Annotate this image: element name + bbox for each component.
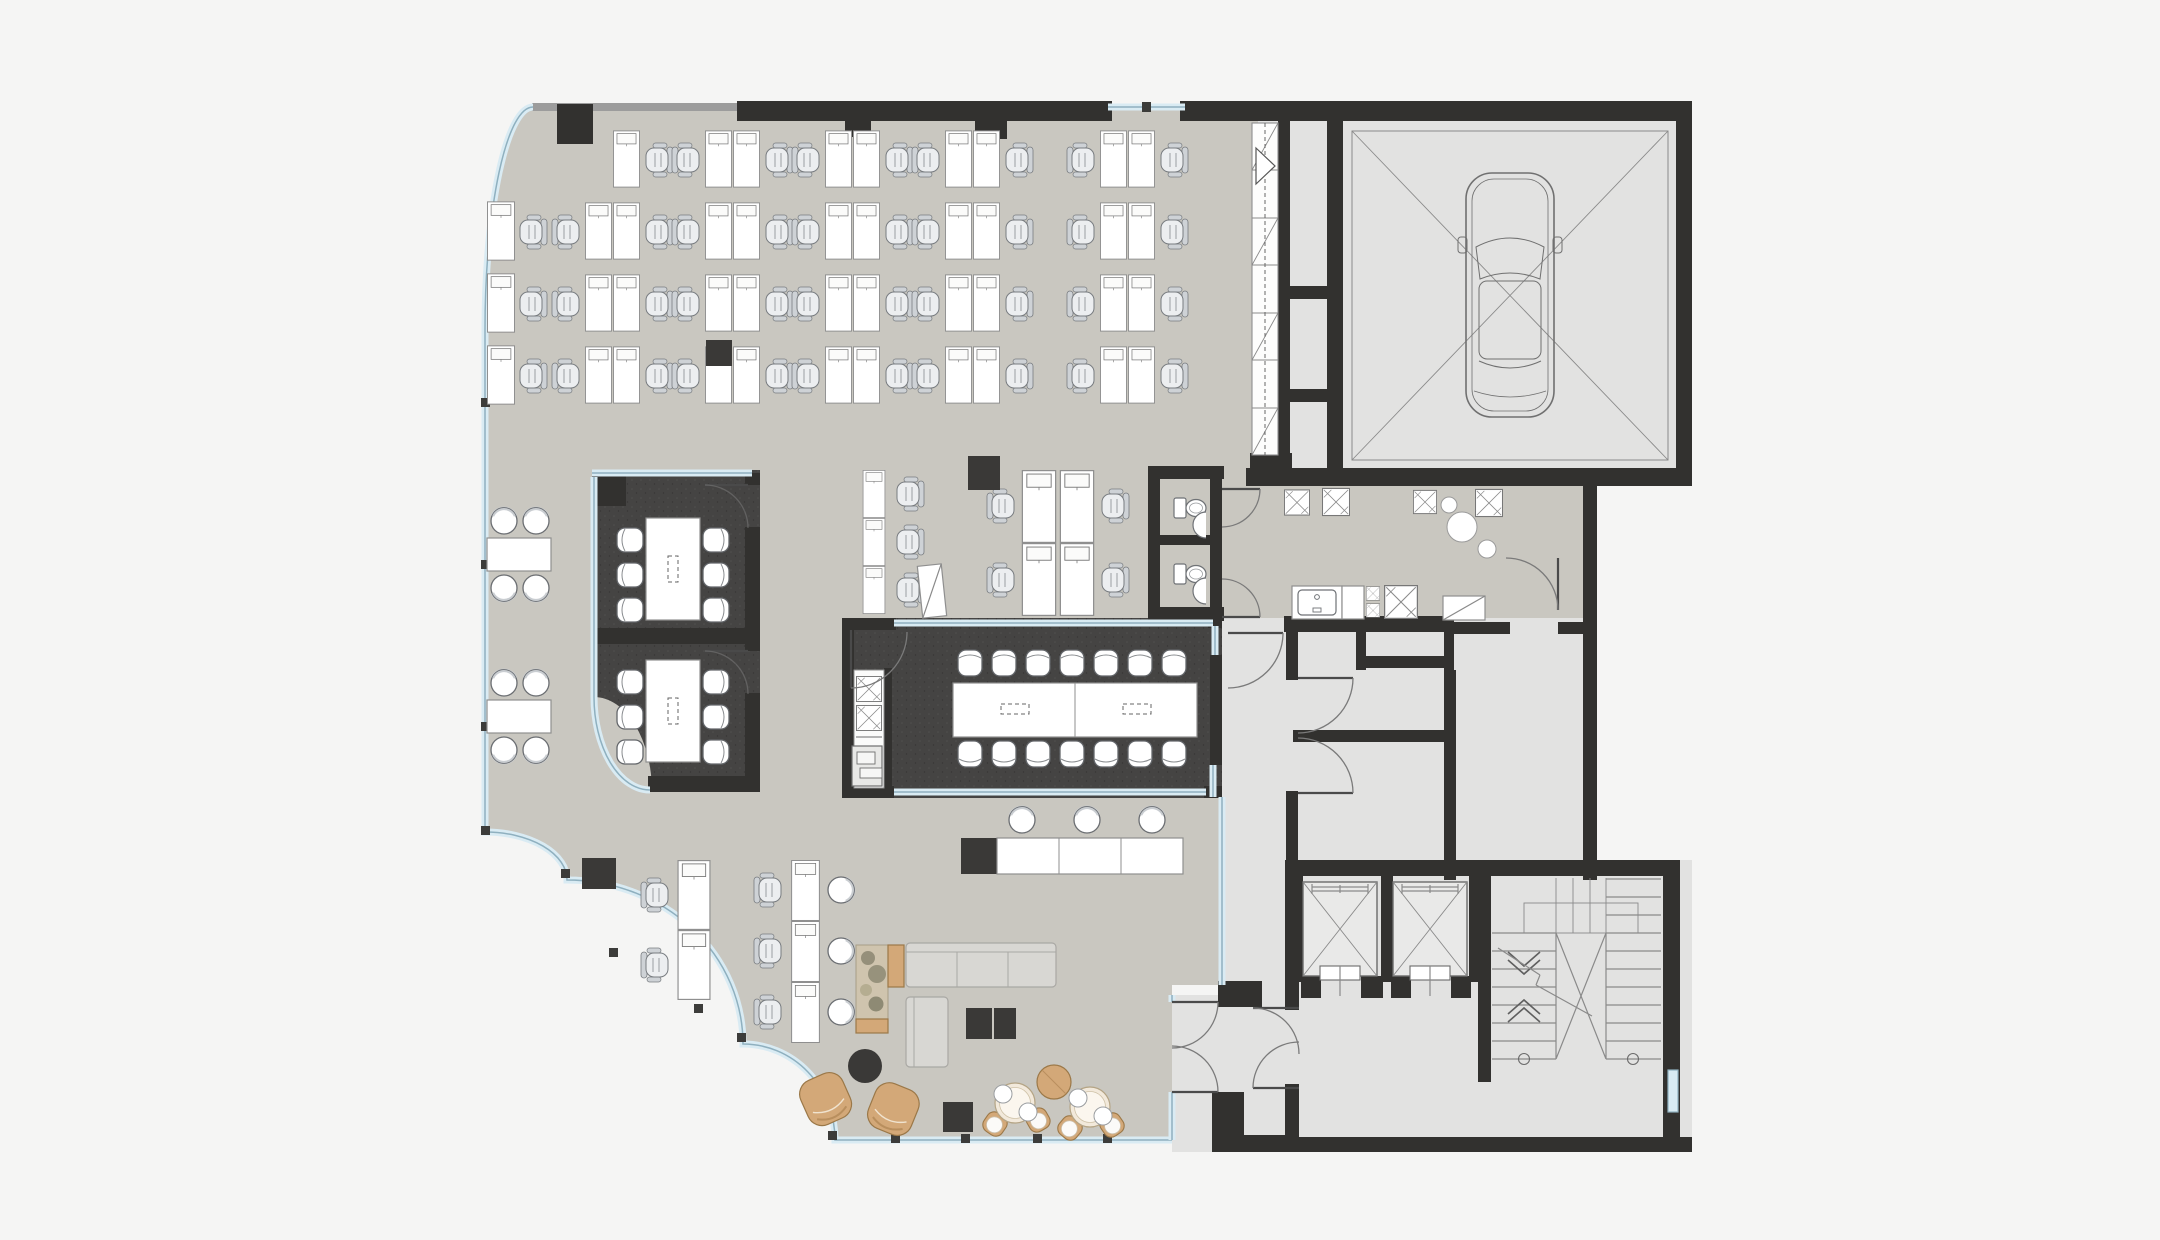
shaft-wall-right — [1469, 876, 1481, 982]
desk — [825, 203, 851, 259]
meeting-wall-right-d — [745, 693, 760, 778]
glass-top-gap — [1108, 102, 1185, 112]
column — [961, 838, 997, 874]
conference-chair — [1094, 650, 1118, 676]
desk — [1128, 275, 1154, 331]
meeting-table — [646, 518, 700, 620]
conference-chair — [1060, 650, 1084, 676]
desk — [705, 131, 731, 187]
corridor-bottom-wall-a — [1446, 622, 1510, 634]
meeting-wall-bottom — [648, 776, 760, 792]
desk — [1022, 544, 1055, 616]
desk — [1100, 131, 1126, 187]
vestibule-wall-b — [1286, 791, 1298, 864]
column — [706, 340, 732, 366]
meeting-chair — [703, 528, 729, 552]
side-chair — [828, 877, 854, 903]
service-shaft — [1284, 490, 1309, 515]
desk — [945, 347, 971, 403]
stair-window — [1668, 1070, 1678, 1112]
service-shaft — [1322, 488, 1349, 515]
desk — [487, 346, 514, 404]
desk — [1022, 471, 1055, 543]
desk — [1100, 203, 1126, 259]
desk — [678, 931, 710, 1000]
desk — [1100, 347, 1126, 403]
desk — [733, 347, 759, 403]
bar-stool — [1009, 807, 1035, 833]
desk — [792, 861, 820, 921]
oven — [856, 676, 881, 701]
desk — [678, 861, 710, 930]
shaft-wall-mid — [1381, 876, 1393, 982]
top-wall-east — [1180, 101, 1692, 121]
side-chair — [828, 938, 854, 964]
column — [968, 456, 1000, 490]
column-top — [557, 104, 593, 144]
meeting-divider-wall — [592, 628, 760, 644]
desk — [585, 203, 611, 259]
corridor-wall-right — [1583, 468, 1597, 880]
desk — [613, 131, 639, 187]
shaft-stub-2 — [1361, 976, 1383, 998]
meeting-chair — [703, 563, 729, 587]
conference-chair — [1162, 650, 1186, 676]
conference-chair — [1026, 741, 1050, 767]
desk — [945, 131, 971, 187]
conf-wall-top-stub — [842, 618, 896, 630]
desk — [1060, 471, 1093, 543]
round-chair — [491, 737, 517, 763]
conference-chair — [958, 741, 982, 767]
shaft-stub-3 — [1391, 976, 1411, 998]
meeting-wall-right-b — [745, 527, 760, 628]
conference-chair — [958, 650, 982, 676]
shaft-stub-b — [1278, 389, 1330, 402]
round-chair — [523, 508, 549, 534]
wood-side-table — [888, 945, 904, 987]
shaft-stub-a — [1278, 286, 1330, 299]
meeting-chair — [703, 705, 729, 729]
meeting-table — [646, 660, 700, 762]
table — [487, 700, 551, 733]
shaft-stub-1 — [1301, 976, 1321, 998]
desk — [1060, 544, 1093, 616]
service-shaft — [1475, 489, 1502, 516]
conference-chair — [1060, 741, 1084, 767]
round-chair — [523, 575, 549, 601]
desk — [863, 566, 885, 613]
round-chair — [491, 508, 517, 534]
meeting-chair — [703, 598, 729, 622]
column — [943, 1102, 973, 1132]
meeting-chair — [617, 598, 643, 622]
desk — [733, 131, 759, 187]
desk — [973, 275, 999, 331]
desk — [792, 922, 820, 982]
niche-wall-b — [1356, 656, 1454, 668]
meeting-chair — [617, 670, 643, 694]
conference-chair — [1162, 741, 1186, 767]
lounge-stub-b — [1212, 1092, 1244, 1142]
conf-niche-wall-r — [884, 668, 892, 794]
flipchart — [917, 564, 946, 618]
bar-table — [997, 838, 1183, 874]
desk — [853, 203, 879, 259]
coffee-table — [994, 1008, 1016, 1039]
ottoman — [848, 1049, 882, 1083]
desk — [1128, 347, 1154, 403]
desk — [585, 275, 611, 331]
round-chair — [523, 737, 549, 763]
service-floor-vestibule — [1222, 618, 1293, 1152]
conf-wall-right — [1210, 655, 1222, 765]
small-shaft — [1366, 587, 1380, 601]
bar-stool — [1139, 807, 1165, 833]
desk — [613, 347, 639, 403]
conference-chair — [1026, 650, 1050, 676]
side-chair — [828, 999, 854, 1025]
conference-chair — [1094, 741, 1118, 767]
desk — [853, 131, 879, 187]
louvre-strip — [1252, 123, 1278, 455]
service-shaft — [1413, 490, 1436, 513]
floor-plan-canvas — [0, 0, 2160, 1240]
desk — [613, 203, 639, 259]
desk — [585, 347, 611, 403]
core-wall-bottom — [1285, 1137, 1692, 1152]
room-divider-wall-v — [1444, 670, 1456, 880]
coffee-table — [966, 1008, 992, 1039]
desk — [487, 202, 514, 260]
desk — [863, 518, 885, 565]
corridor-bottom-wall-b — [1558, 622, 1583, 634]
car-lift-wall-right — [1676, 121, 1692, 470]
meeting-room-2 — [617, 660, 729, 764]
meeting-room-1 — [617, 518, 729, 622]
conference-chair — [1128, 650, 1152, 676]
printer — [852, 746, 882, 786]
table — [487, 538, 551, 571]
desk — [1128, 131, 1154, 187]
small-shaft — [1366, 604, 1380, 618]
shaft-wall-left — [1293, 876, 1303, 982]
desk — [853, 275, 879, 331]
sofa-horizontal — [906, 943, 1056, 987]
vestibule-wall-a — [1286, 622, 1298, 680]
core-wall-top — [1285, 860, 1680, 876]
desk — [792, 983, 820, 1043]
conference-chair — [992, 741, 1016, 767]
meeting-chair — [703, 670, 729, 694]
lounge-stub-c — [1212, 1135, 1292, 1152]
desk — [613, 275, 639, 331]
round-chair — [491, 670, 517, 696]
desk — [945, 275, 971, 331]
wood-shelf — [856, 1019, 888, 1033]
desk — [825, 347, 851, 403]
meeting-chair — [703, 740, 729, 764]
sofa-vertical — [906, 997, 948, 1067]
column — [582, 858, 616, 889]
desk — [973, 347, 999, 403]
meeting-chair — [617, 528, 643, 552]
round-chair — [491, 575, 517, 601]
desk — [733, 203, 759, 259]
desk — [1100, 275, 1126, 331]
car-lift-wall-left — [1327, 121, 1343, 470]
round-chair — [523, 670, 549, 696]
desk — [945, 203, 971, 259]
desk — [705, 203, 731, 259]
desk — [973, 203, 999, 259]
desk — [973, 131, 999, 187]
meeting-chair — [617, 563, 643, 587]
conference-chair — [992, 650, 1016, 676]
desk — [825, 275, 851, 331]
shaft-stub-4 — [1451, 976, 1471, 998]
appliance-shaft — [1385, 586, 1418, 619]
desk — [853, 347, 879, 403]
conference-chair — [1128, 741, 1152, 767]
bar-stool — [1074, 807, 1100, 833]
desk — [825, 131, 851, 187]
meeting-chair — [617, 740, 643, 764]
oven — [856, 705, 881, 730]
desk — [733, 275, 759, 331]
car-lift-wall-bottom — [1246, 468, 1692, 486]
top-wall-center — [737, 101, 1112, 121]
meeting-chair — [617, 705, 643, 729]
desk — [1128, 203, 1154, 259]
desk — [863, 470, 885, 517]
desk — [705, 275, 731, 331]
desk — [487, 274, 514, 332]
